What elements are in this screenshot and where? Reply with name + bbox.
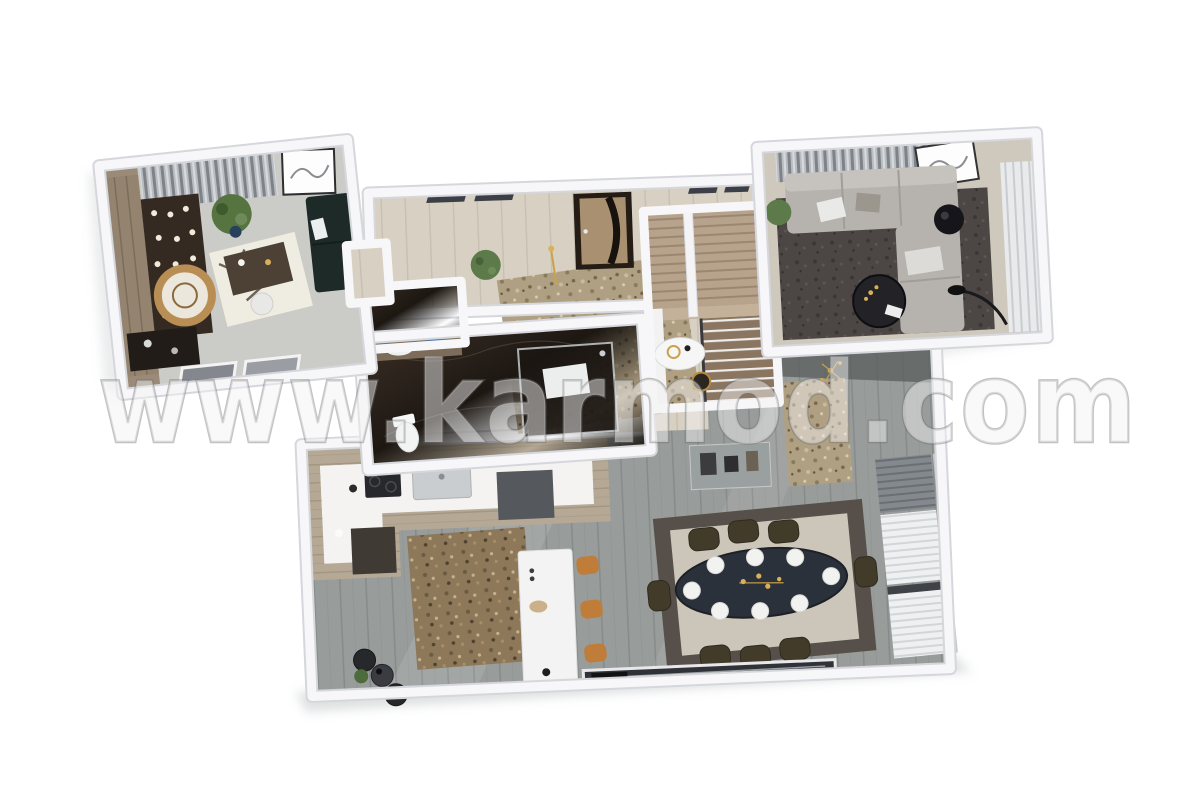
bar-stool [584,643,608,663]
kitchen-rug [407,527,535,670]
lounge-room [757,133,1047,352]
watermark: www.karmod.com [98,339,1138,469]
kitchen-appliance [496,470,554,520]
dining-chair [727,519,759,544]
dining-chair [688,527,720,552]
front-door [573,192,634,270]
bistro-table [371,664,394,687]
bar-stool [580,599,604,619]
dining-chair [779,637,811,662]
dining-area [641,498,885,677]
bar-stool [576,555,600,575]
kitchen-island [518,549,578,691]
floorplan-svg: www.karmod.com [0,0,1200,800]
office-round-rug [155,266,214,325]
bistro-chair [353,649,376,672]
sofa-pillow [855,193,880,213]
office-art-frame [282,149,336,195]
dining-chair [853,556,878,588]
counter-open-shelf [351,527,397,575]
dining-chair [647,580,672,612]
office-corridor [346,243,390,304]
dining-chair [768,519,800,544]
stair-upper-flight [647,209,770,311]
floor-plan-render: www.karmod.com [0,0,1200,800]
